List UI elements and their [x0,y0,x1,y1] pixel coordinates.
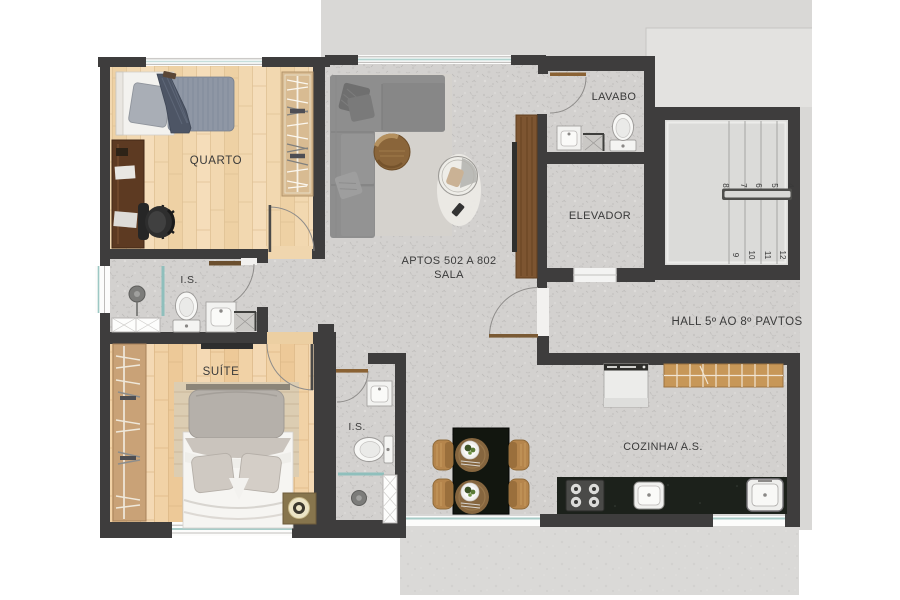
svg-text:ELEVADOR: ELEVADOR [569,210,631,222]
svg-text:9: 9 [731,253,740,258]
svg-text:APTOS 502 A 802: APTOS 502 A 802 [401,255,496,267]
svg-text:I.S.: I.S. [180,274,197,286]
svg-text:SALA: SALA [434,269,464,281]
svg-text:11: 11 [763,251,772,260]
svg-text:SUÍTE: SUÍTE [203,365,240,378]
svg-text:5: 5 [770,183,779,188]
svg-text:4: 4 [786,183,795,188]
svg-text:12: 12 [778,251,787,260]
svg-text:I.S.: I.S. [348,421,365,433]
svg-text:COZINHA/ A.S.: COZINHA/ A.S. [623,441,703,453]
svg-text:6: 6 [754,183,763,188]
svg-text:QUARTO: QUARTO [190,155,242,167]
svg-text:LAVABO: LAVABO [592,91,637,103]
svg-text:10: 10 [747,251,756,260]
svg-text:HALL 5º AO 8º PAVTOS: HALL 5º AO 8º PAVTOS [671,316,802,328]
svg-text:8: 8 [721,183,730,188]
svg-text:7: 7 [739,183,748,188]
